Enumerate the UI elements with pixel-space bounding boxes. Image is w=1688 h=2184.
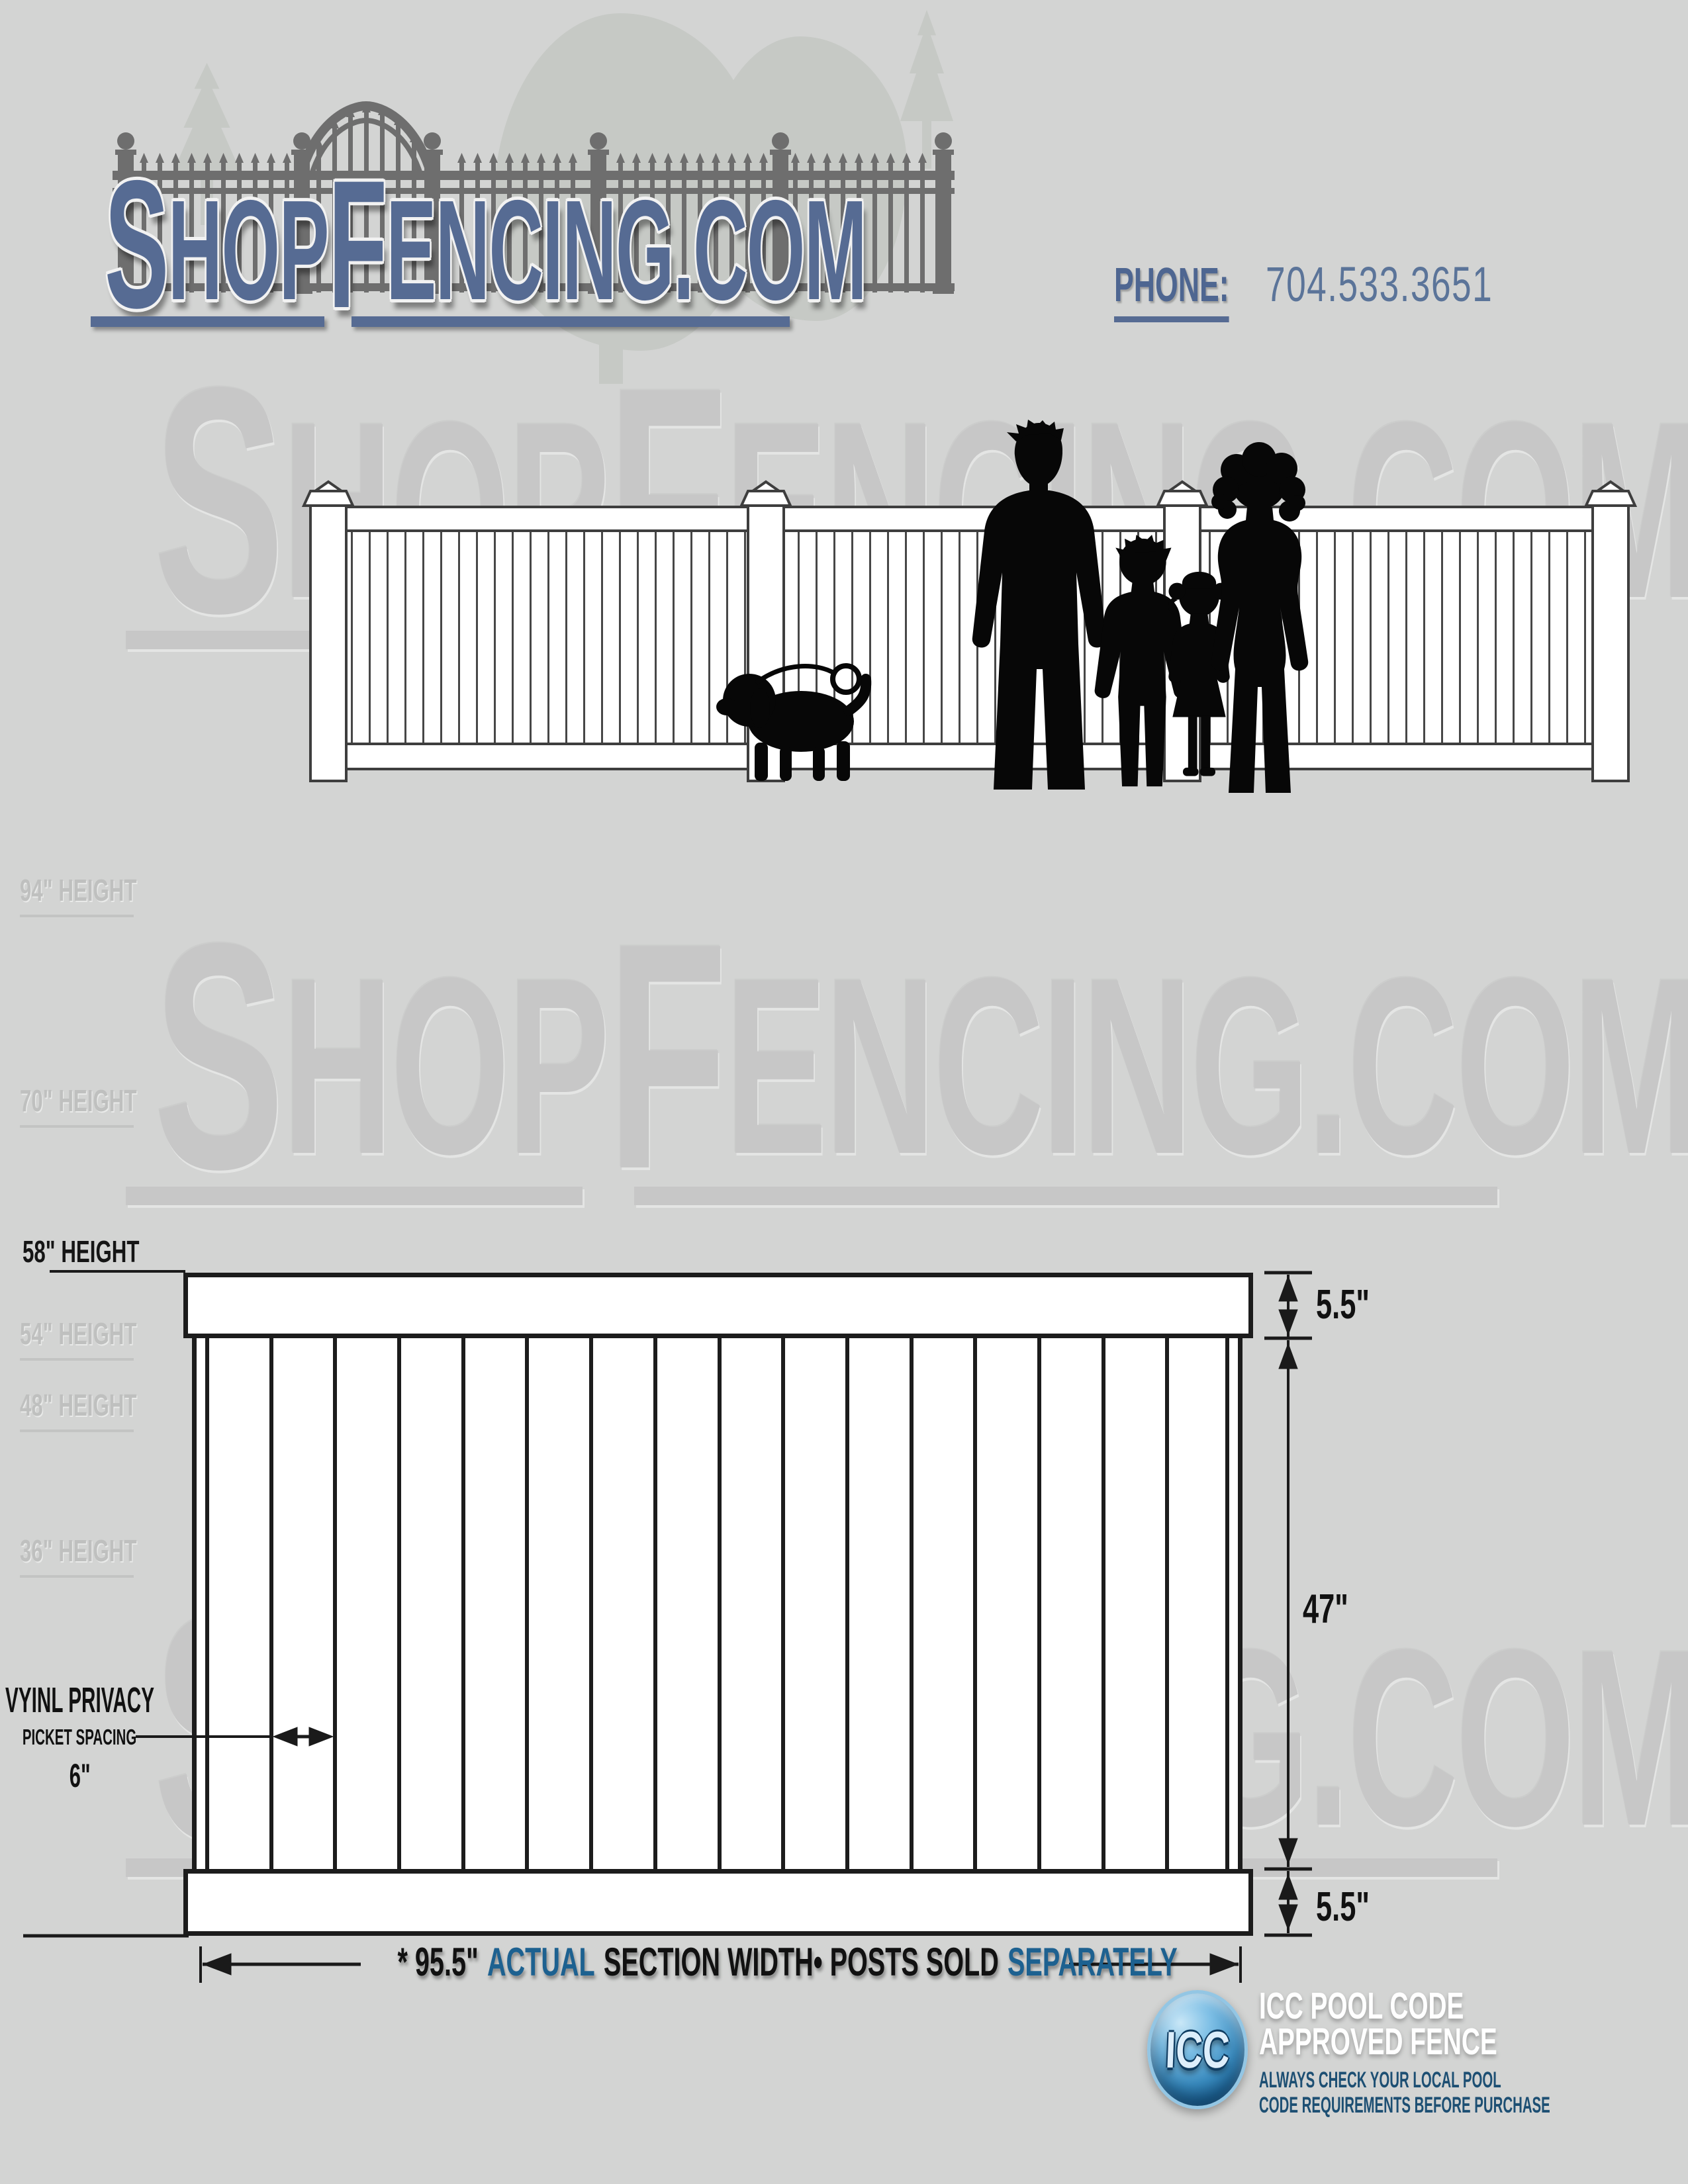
diagram-picket-line [333, 1338, 337, 1869]
diagram-picket-line [1165, 1338, 1169, 1869]
word-separately: SEPARATELY [1008, 1940, 1178, 1984]
diagram-picket-line [205, 1338, 209, 1869]
diagram-picket-line [1102, 1338, 1105, 1869]
diagram-picket-panel [192, 1338, 1243, 1869]
phone-label: PHONE: [1114, 258, 1229, 322]
dim-label-top-rail: 5.5" [1316, 1281, 1393, 1328]
width-note-middle: SECTION WIDTH• POSTS SOLD [604, 1940, 999, 1984]
height-label-94: 94" HEIGHT [20, 872, 134, 917]
watermark-underline [126, 1187, 583, 1205]
height-label-58: 58" HEIGHT [23, 1234, 136, 1276]
icc-title: ICC POOL CODE APPROVED FENCE [1259, 1988, 1497, 2060]
diagram-picket-line [845, 1338, 849, 1869]
dim-label-picket-height: 47" [1303, 1586, 1368, 1633]
fence-illustration-bottom-rail [312, 743, 1628, 770]
diagram-picket-line [1225, 1338, 1229, 1869]
section-width-note: * 95.5"ACTUALSECTION WIDTH• POSTS SOLDSE… [183, 1939, 1253, 1985]
watermark-underline [634, 1187, 1497, 1205]
icc-badge: ICC [1147, 1990, 1248, 2109]
phone-block: PHONE: 704.533.3651 [1114, 256, 1581, 322]
spacing-subtitle: PICKET SPACING [23, 1725, 136, 1750]
fence-illustration-pickets [312, 531, 1628, 744]
height-label-70: 70" HEIGHT [20, 1083, 134, 1128]
fence-post [1163, 492, 1201, 782]
diagram-picket-line [718, 1338, 722, 1869]
logo-letters: HOP [168, 170, 328, 330]
diagram-picket-line [525, 1338, 529, 1869]
word-actual: ACTUAL [487, 1940, 595, 1984]
fence-illustration-top-rail [312, 506, 1628, 532]
diagram-picket-line [589, 1338, 593, 1869]
spacing-title: VYINL PRIVACY [5, 1680, 154, 1721]
diagram-picket-line [1037, 1338, 1041, 1869]
diagram-picket-line [461, 1338, 465, 1869]
height-label-54: 54" HEIGHT [20, 1316, 134, 1361]
diagram-picket-line [910, 1338, 914, 1869]
diagram-picket-line [781, 1338, 785, 1869]
phone-number: 704.533.3651 [1266, 256, 1493, 312]
fence-post [1591, 492, 1630, 782]
icc-badge-text: ICC [1164, 2020, 1231, 2080]
height-label-48: 48" HEIGHT [20, 1387, 134, 1432]
dim-label-bottom-rail: 5.5" [1316, 1884, 1393, 1931]
diagram-picket-line [269, 1338, 273, 1869]
diagram-top-rail [183, 1273, 1253, 1338]
spacing-value: 6" [70, 1756, 91, 1795]
diagram-picket-line [397, 1338, 401, 1869]
icc-note: ALWAYS CHECK YOUR LOCAL POOL CODE REQUIR… [1259, 2068, 1550, 2118]
width-measure: * 95.5" [397, 1940, 478, 1984]
flyer-page: SHOPFENCING.COM PHONE: 704.533.3651 SHOP… [0, 0, 1688, 2184]
watermark-text: SHOPFENCING.COM [154, 940, 1688, 1192]
diagram-bottom-rail [183, 1869, 1253, 1936]
picket-spacing-annotation: VYINL PRIVACY PICKET SPACING 6" [12, 1680, 148, 1795]
fence-post [747, 492, 785, 782]
fence-post [309, 492, 348, 782]
diagram-picket-line [653, 1338, 657, 1869]
logo-letters: ENCING.COM [386, 170, 866, 330]
height-label-36: 36" HEIGHT [20, 1533, 134, 1578]
diagram-picket-line [973, 1338, 977, 1869]
